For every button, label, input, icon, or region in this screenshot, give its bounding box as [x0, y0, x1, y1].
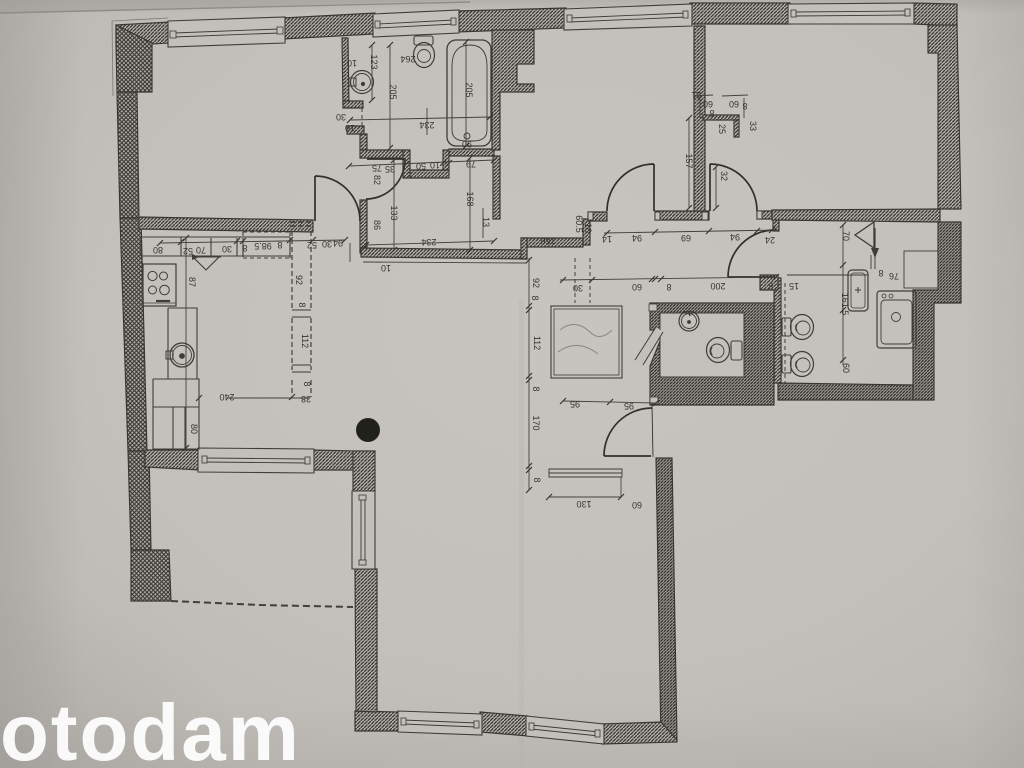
- svg-text:otodam: otodam: [0, 688, 301, 768]
